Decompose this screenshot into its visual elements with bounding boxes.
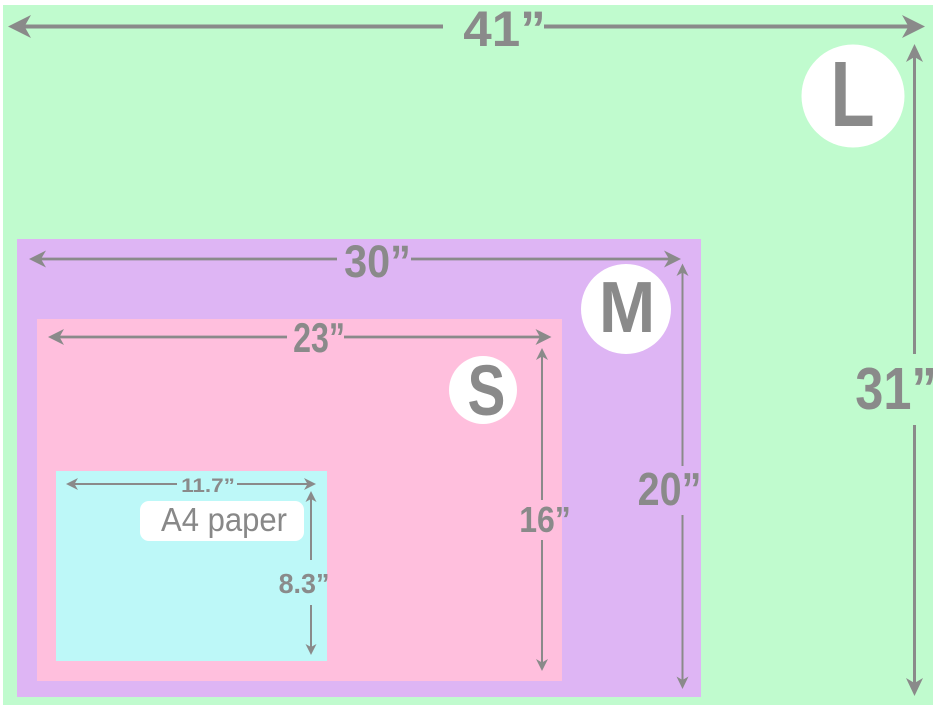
svg-text:16”: 16” (519, 499, 571, 540)
svg-text:20”: 20” (638, 463, 702, 515)
svg-text:23”: 23” (293, 315, 345, 361)
svg-text:M: M (599, 267, 655, 347)
svg-text:11.7”: 11.7” (181, 476, 235, 497)
svg-text:31”: 31” (855, 355, 936, 422)
svg-text:8.3”: 8.3” (279, 568, 330, 599)
svg-text:L: L (830, 42, 874, 146)
svg-text:S: S (468, 351, 506, 431)
svg-text:41”: 41” (463, 1, 546, 57)
svg-text:30”: 30” (344, 236, 411, 287)
svg-text:A4 paper: A4 paper (161, 502, 287, 539)
